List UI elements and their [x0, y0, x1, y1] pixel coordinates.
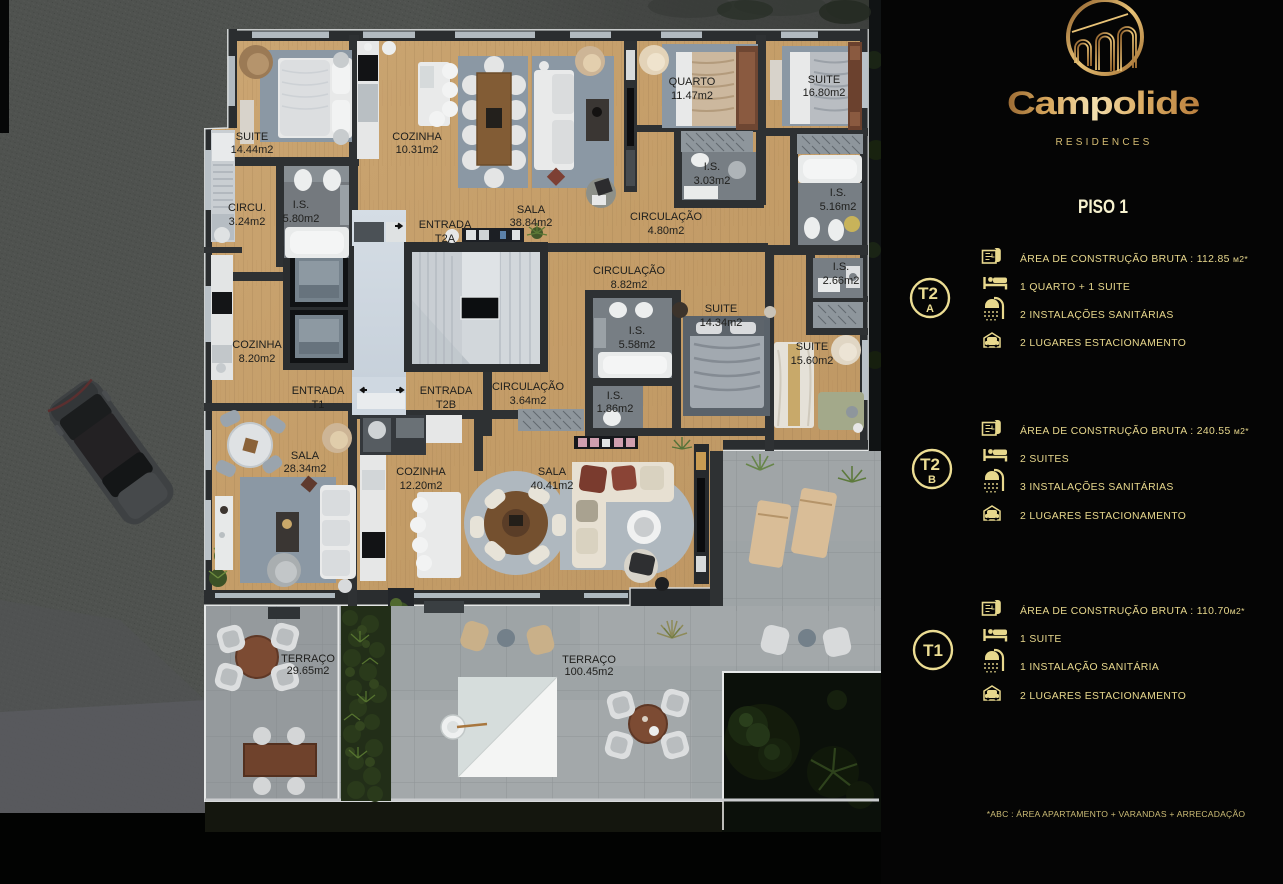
svg-text:15.60m2: 15.60m2	[791, 355, 834, 367]
svg-text:8.20m2: 8.20m2	[239, 353, 276, 365]
svg-text:1.86m2: 1.86m2	[597, 403, 634, 415]
svg-text:ENTRADA: ENTRADA	[292, 385, 345, 397]
svg-text:29.65m2: 29.65m2	[287, 665, 330, 677]
svg-text:*ABC : ÁREA APARTAMENTO + VAR: *ABC : ÁREA APARTAMENTO + VARANDAS + ARR…	[987, 809, 1246, 819]
svg-text:PISO 1: PISO 1	[1078, 197, 1128, 218]
svg-text:ÁREA DE CONSTRUÇÃO BRUTA : 11: ÁREA DE CONSTRUÇÃO BRUTA : 110.70м2*	[1020, 604, 1245, 617]
svg-text:ÁREA DE CONSTRUÇÃO BRUTA : 24: ÁREA DE CONSTRUÇÃO BRUTA : 240.55 м2*	[1020, 424, 1249, 437]
svg-text:11.47m2: 11.47m2	[671, 90, 713, 102]
svg-text:I.S.: I.S.	[293, 199, 310, 211]
svg-text:TERRAÇO: TERRAÇO	[562, 654, 616, 666]
svg-text:RESIDENCES: RESIDENCES	[1055, 137, 1152, 148]
svg-text:SUITE: SUITE	[796, 341, 828, 353]
svg-text:5.80m2: 5.80m2	[283, 213, 320, 225]
svg-text:ÁREA DE CONSTRUÇÃO BRUTA : 11: ÁREA DE CONSTRUÇÃO BRUTA : 112.85 м2*	[1020, 252, 1248, 265]
svg-text:T1: T1	[312, 399, 325, 411]
svg-text:4.80m2: 4.80m2	[648, 225, 685, 237]
svg-text:1 QUARTO + 1 SUITE: 1 QUARTO + 1 SUITE	[1020, 282, 1130, 293]
svg-text:T2A: T2A	[435, 233, 456, 245]
svg-text:CIRCULAÇÃO: CIRCULAÇÃO	[492, 380, 565, 393]
svg-text:2 LUGARES ESTACIONAMENTO: 2 LUGARES ESTACIONAMENTO	[1020, 511, 1186, 522]
svg-text:SUITE: SUITE	[808, 74, 840, 86]
svg-text:COZINHA: COZINHA	[232, 339, 282, 351]
svg-text:14.34m2: 14.34m2	[700, 317, 743, 329]
svg-text:I.S.: I.S.	[607, 390, 624, 402]
svg-text:I.S.: I.S.	[629, 325, 646, 337]
svg-text:2 INSTALAÇÕES SANITÁRIAS: 2 INSTALAÇÕES SANITÁRIAS	[1020, 308, 1174, 321]
svg-text:I.S.: I.S.	[830, 187, 847, 199]
svg-text:14.44m2: 14.44m2	[231, 144, 274, 156]
svg-text:TERRAÇO: TERRAÇO	[281, 653, 335, 665]
svg-text:2 SUITES: 2 SUITES	[1020, 454, 1069, 465]
svg-text:I.S.: I.S.	[833, 261, 850, 273]
svg-text:Campolide: Campolide	[1007, 85, 1199, 121]
svg-text:2 LUGARES ESTACIONAMENTO: 2 LUGARES ESTACIONAMENTO	[1020, 691, 1186, 702]
svg-text:T1: T1	[923, 641, 943, 660]
svg-text:CIRCULAÇÃO: CIRCULAÇÃO	[593, 264, 666, 277]
svg-text:COZINHA: COZINHA	[392, 131, 442, 143]
svg-text:40.41m2: 40.41m2	[531, 480, 574, 492]
svg-text:SALA: SALA	[538, 466, 567, 478]
svg-text:ENTRADA: ENTRADA	[420, 385, 473, 397]
svg-text:CIRCU.: CIRCU.	[228, 202, 266, 214]
svg-text:2.66m2: 2.66m2	[823, 275, 860, 287]
svg-text:16.80m2: 16.80m2	[803, 87, 846, 99]
svg-text:SUITE: SUITE	[705, 303, 737, 315]
svg-text:38.84m2: 38.84m2	[510, 217, 553, 229]
svg-text:3.24m2: 3.24m2	[229, 216, 266, 228]
svg-text:A: A	[926, 303, 934, 315]
svg-text:3 INSTALAÇÕES SANITÁRIAS: 3 INSTALAÇÕES SANITÁRIAS	[1020, 480, 1174, 493]
svg-text:3.64m2: 3.64m2	[510, 395, 547, 407]
svg-text:ENTRADA: ENTRADA	[419, 219, 472, 231]
svg-text:8.82m2: 8.82m2	[611, 279, 648, 291]
svg-text:10.31m2: 10.31m2	[396, 144, 439, 156]
svg-text:COZINHA: COZINHA	[396, 466, 446, 478]
svg-text:5.58m2: 5.58m2	[619, 339, 656, 351]
svg-text:B: B	[928, 474, 936, 486]
svg-text:SALA: SALA	[291, 450, 320, 462]
svg-text:1 INSTALAÇÃO SANITÁRIA: 1 INSTALAÇÃO SANITÁRIA	[1020, 660, 1159, 673]
svg-text:100.45m2: 100.45m2	[565, 666, 614, 678]
svg-text:2 LUGARES ESTACIONAMENTO: 2 LUGARES ESTACIONAMENTO	[1020, 338, 1186, 349]
svg-text:SUITE: SUITE	[236, 131, 268, 143]
svg-text:5.16m2: 5.16m2	[820, 201, 857, 213]
svg-text:1 SUITE: 1 SUITE	[1020, 634, 1062, 645]
svg-text:T2: T2	[920, 455, 940, 474]
svg-text:I.S.: I.S.	[704, 161, 721, 173]
svg-text:SALA: SALA	[517, 204, 546, 216]
svg-text:12.20m2: 12.20m2	[400, 480, 443, 492]
svg-text:CIRCULAÇÃO: CIRCULAÇÃO	[630, 210, 703, 223]
svg-text:QUARTO: QUARTO	[669, 76, 716, 88]
svg-text:28.34m2: 28.34m2	[284, 463, 327, 475]
svg-text:3.03m2: 3.03m2	[694, 175, 731, 187]
svg-text:T2B: T2B	[436, 399, 456, 411]
svg-text:T2: T2	[918, 284, 938, 303]
